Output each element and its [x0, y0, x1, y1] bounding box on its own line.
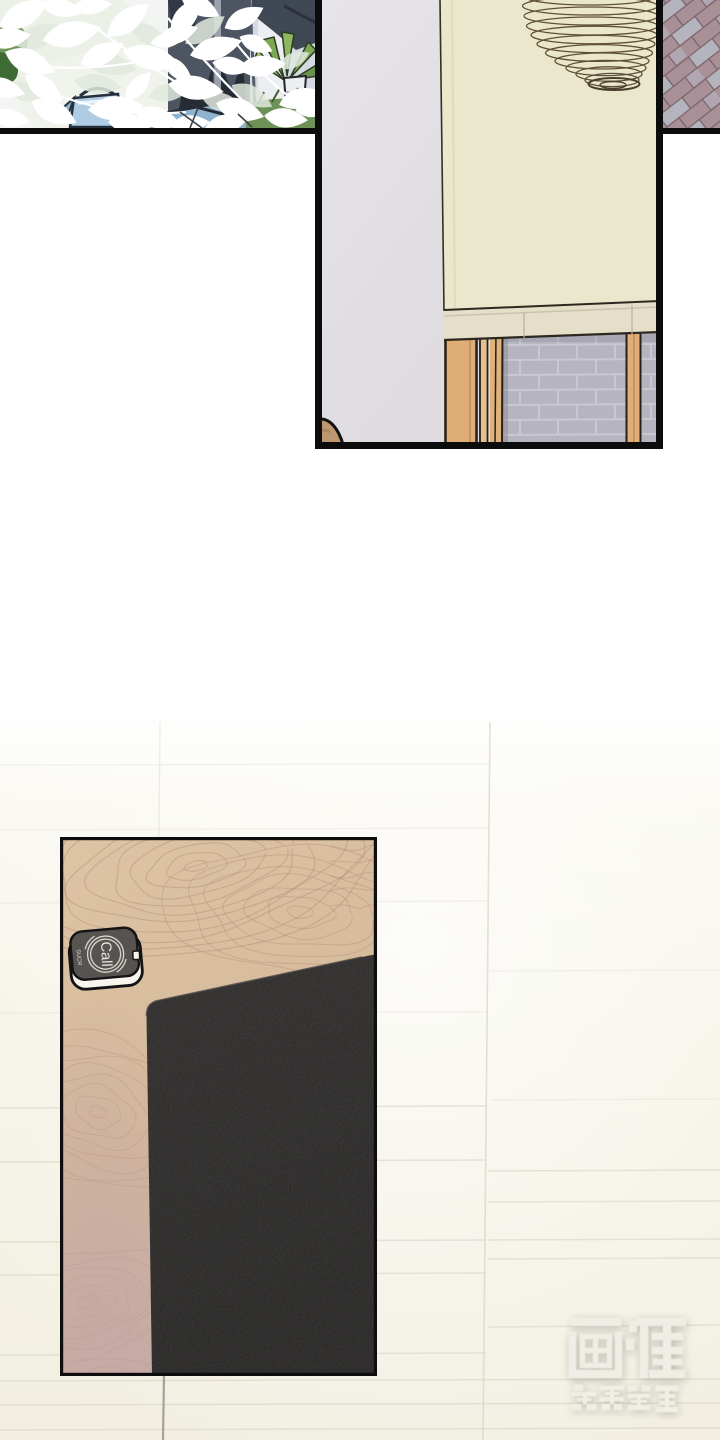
svg-text:Call: Call — [97, 941, 114, 967]
